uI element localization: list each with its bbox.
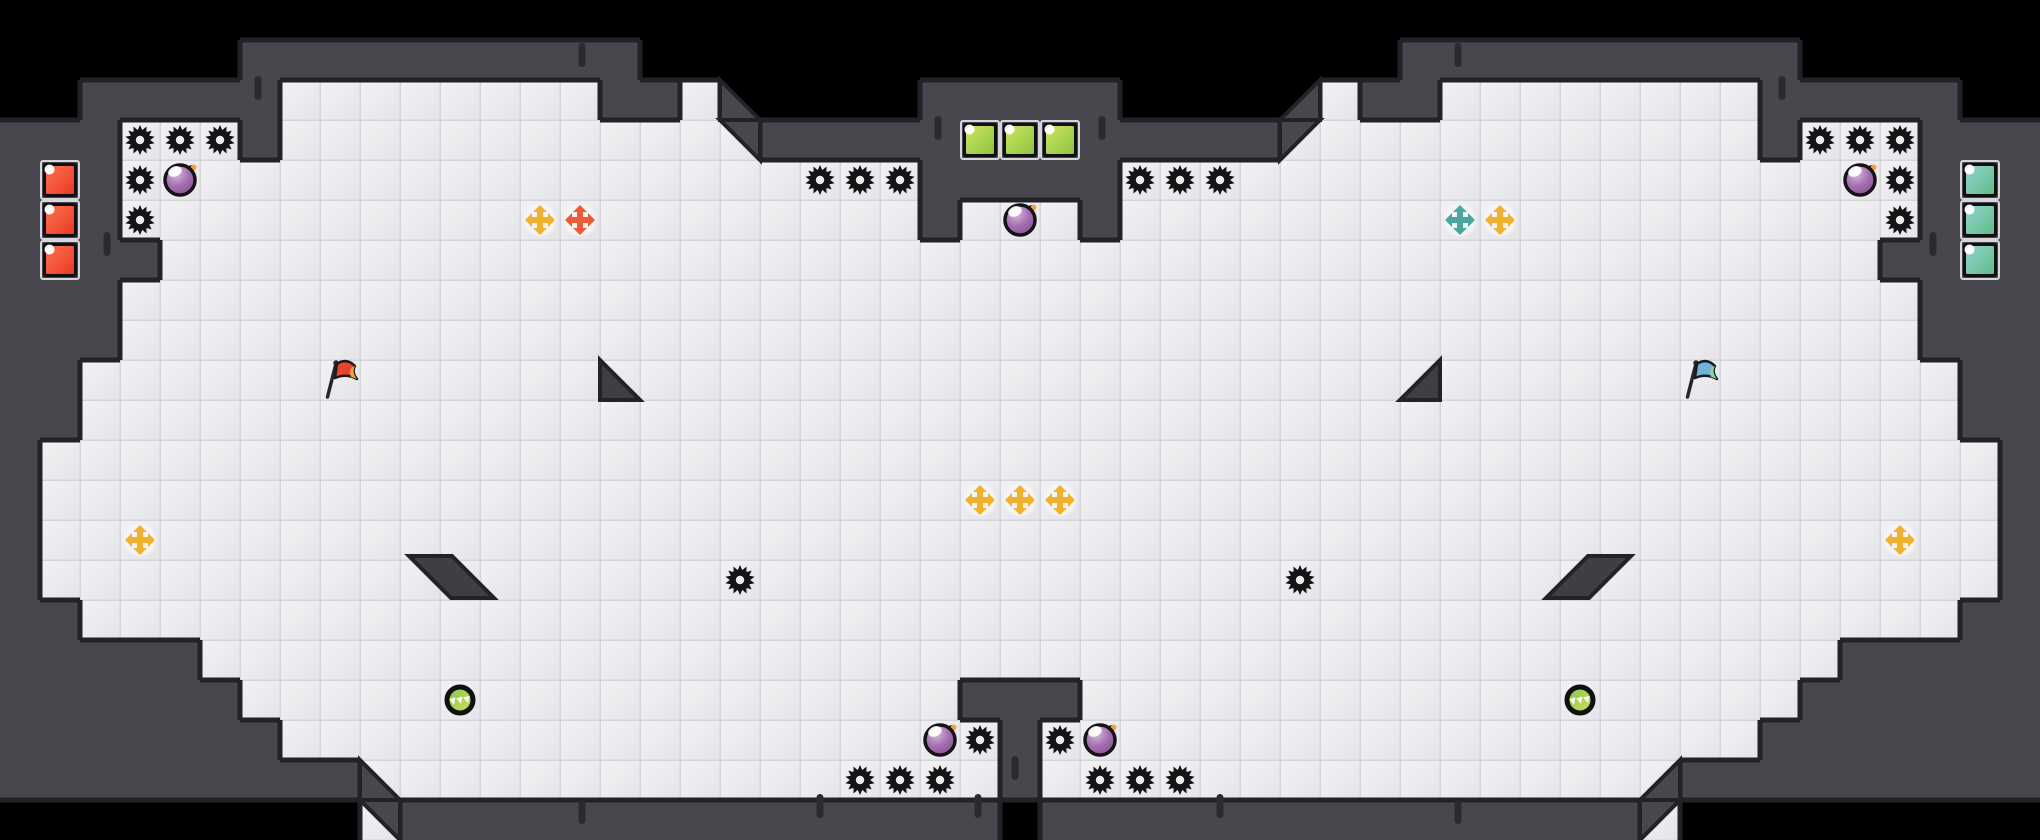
- red-block[interactable]: [41, 241, 79, 279]
- move-arrow-item[interactable]: [124, 524, 156, 556]
- green-block[interactable]: [1001, 121, 1039, 159]
- wall-dash-mark: [935, 116, 942, 140]
- wall-dash-mark: [1779, 76, 1786, 100]
- bomb[interactable]: [1845, 164, 1877, 195]
- wall-dash-mark: [104, 232, 111, 256]
- move-arrow-item[interactable]: [1004, 484, 1036, 516]
- wall-dash-mark: [579, 43, 586, 67]
- move-arrow-item[interactable]: [1444, 204, 1476, 236]
- green-coin[interactable]: [447, 687, 473, 713]
- move-arrow-item[interactable]: [564, 204, 596, 236]
- teal-block[interactable]: [1961, 161, 1999, 199]
- wall-dash-mark: [817, 794, 824, 818]
- move-arrow-item[interactable]: [1884, 524, 1916, 556]
- wall-dash-mark: [1099, 116, 1106, 140]
- wall-dash-mark: [1012, 756, 1019, 780]
- wall-dash-mark: [975, 794, 982, 818]
- teal-block[interactable]: [1961, 241, 1999, 279]
- bomb[interactable]: [1005, 204, 1037, 235]
- wall-dash-mark: [1217, 794, 1224, 818]
- game-viewport: [0, 0, 2040, 840]
- green-block[interactable]: [1041, 121, 1079, 159]
- move-arrow-item[interactable]: [524, 204, 556, 236]
- wall-dash-mark: [1455, 800, 1462, 824]
- wall-dash-mark: [579, 800, 586, 824]
- wall-dash-mark: [1930, 232, 1937, 256]
- wall-dash-mark: [1455, 43, 1462, 67]
- move-arrow-item[interactable]: [1044, 484, 1076, 516]
- teal-block[interactable]: [1961, 201, 1999, 239]
- bomb[interactable]: [925, 724, 957, 755]
- bomb[interactable]: [1085, 724, 1117, 755]
- bomb[interactable]: [165, 164, 197, 195]
- move-arrow-item[interactable]: [964, 484, 996, 516]
- wall-dash-mark: [255, 76, 262, 100]
- level-canvas[interactable]: [0, 0, 2040, 840]
- green-block[interactable]: [961, 121, 999, 159]
- green-coin[interactable]: [1567, 687, 1593, 713]
- red-block[interactable]: [41, 201, 79, 239]
- red-block[interactable]: [41, 161, 79, 199]
- move-arrow-item[interactable]: [1484, 204, 1516, 236]
